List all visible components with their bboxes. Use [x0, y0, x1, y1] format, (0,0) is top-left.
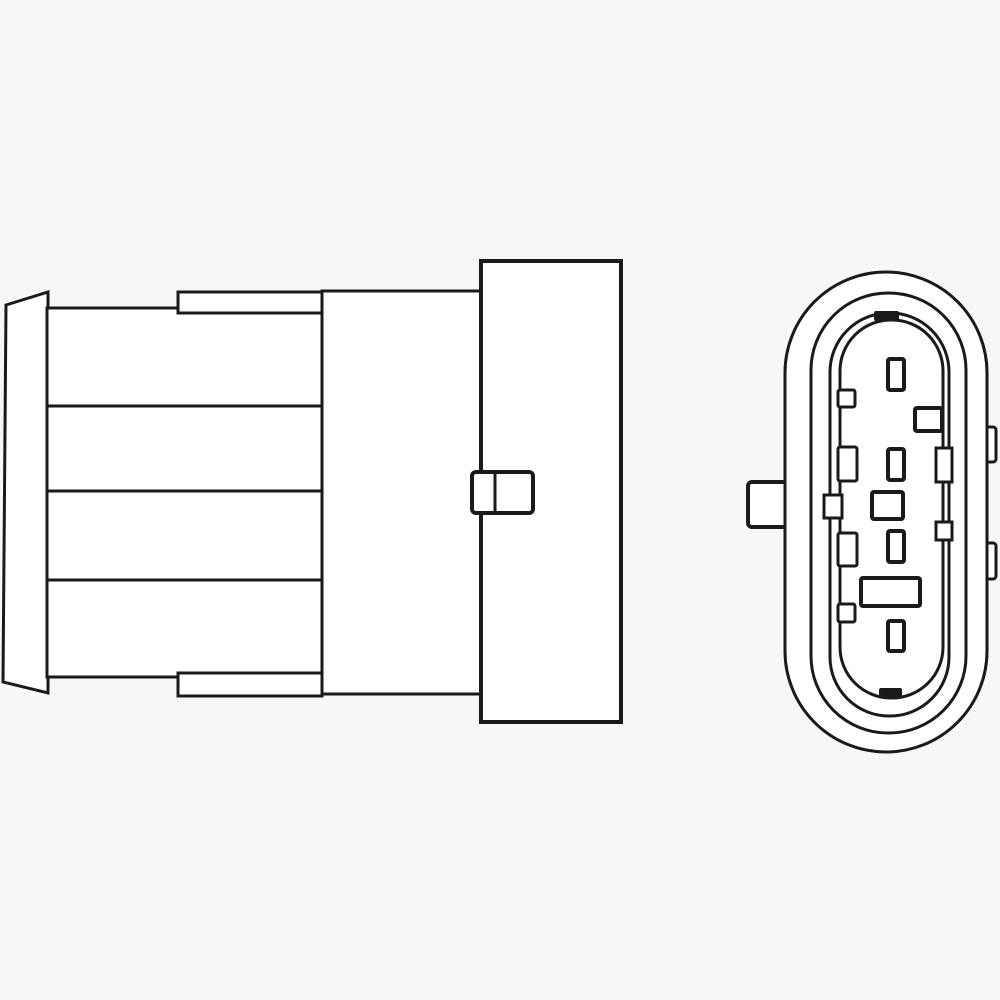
pin-slot-4 — [872, 492, 903, 519]
pin-slot-6 — [861, 578, 920, 606]
index-mark-bottom — [879, 688, 902, 698]
key-jog-right-top — [936, 448, 952, 482]
product-diagram-page — [0, 0, 1000, 1000]
key-jog-left — [824, 495, 842, 518]
key-jog-right-bottom — [936, 522, 952, 540]
pin-slot-2 — [915, 408, 942, 431]
key-bump-4 — [838, 604, 855, 622]
index-mark-top — [874, 311, 899, 321]
pin-slot-7 — [888, 621, 904, 651]
pin-slot-1 — [888, 359, 904, 390]
bottom-tab — [178, 673, 322, 696]
connector-neck — [322, 291, 481, 694]
diagram-svg — [0, 0, 1000, 1000]
key-bump-2 — [838, 447, 857, 481]
key-bump-3 — [838, 533, 857, 566]
connector-diagram-root — [3, 261, 996, 752]
pin-slot-5 — [888, 531, 904, 562]
flange-cap — [3, 292, 48, 693]
pin-slot-3 — [888, 449, 904, 480]
latch-clip — [472, 472, 533, 513]
key-bump-1 — [838, 390, 855, 407]
top-tab — [178, 292, 322, 313]
